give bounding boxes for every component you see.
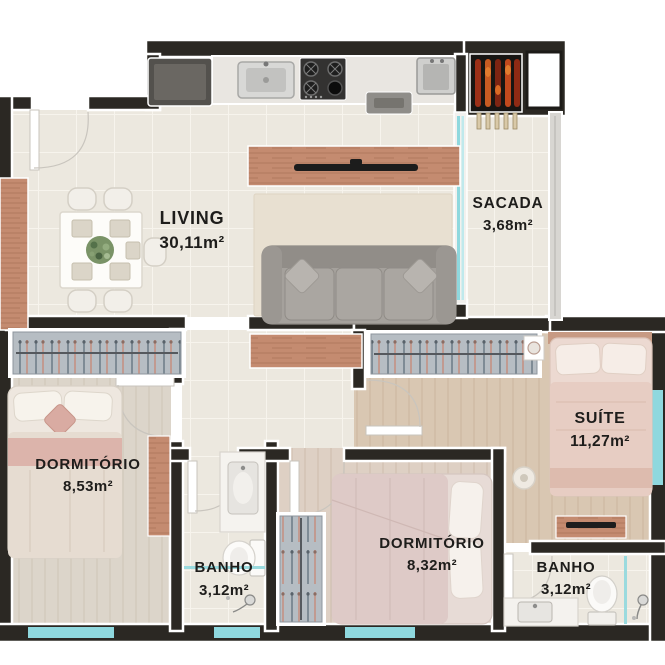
label-banho2-area: 3,12m² (541, 581, 591, 598)
dorm1-dresser (148, 436, 170, 536)
vanity-icon (220, 452, 265, 532)
label-sacada-area: 3,68m² (483, 217, 533, 234)
wall-banho2-north (530, 541, 665, 554)
window-banho1 (214, 627, 260, 638)
shower-glass (624, 556, 627, 624)
wardrobe-dorm2 (276, 512, 326, 626)
range-hood-inner (374, 98, 404, 108)
stove-icon (300, 58, 346, 100)
centerpiece-plant-icon (86, 236, 114, 264)
pillow (601, 343, 647, 375)
throw (550, 468, 652, 488)
fridge-front (154, 64, 206, 100)
window-dorm1 (28, 627, 114, 638)
floor-plan: LIVING 30,11m² SACADA 3,68m² DORMITÓRIO … (0, 0, 665, 665)
wardrobe-dorm1 (8, 328, 186, 378)
suite-tv-panel (556, 516, 626, 538)
label-banho2: BANHO (537, 559, 596, 576)
label-living: LIVING (160, 208, 225, 228)
tv-icon (294, 164, 418, 171)
floor-plan-canvas: LIVING 30,11m² SACADA 3,68m² DORMITÓRIO … (0, 0, 665, 665)
label-dormitorio2-area: 8,32m² (407, 557, 457, 574)
pillow (555, 343, 601, 375)
sink-icon (238, 62, 294, 99)
wall-step-right (546, 316, 665, 332)
label-banho1-area: 3,12m² (199, 582, 249, 599)
window-dorm2 (345, 627, 415, 638)
wall-divider-left (6, 316, 186, 330)
wall-corr-south-a (170, 448, 190, 461)
wall-sacada-divider (455, 54, 467, 116)
label-dormitorio1: DORMITÓRIO (35, 455, 141, 473)
label-suite: SUÍTE (574, 408, 625, 427)
window-suite (652, 390, 663, 485)
duct-shaft (527, 52, 561, 108)
grill-icon (470, 54, 522, 129)
toilet-icon (587, 576, 617, 625)
lamp-icon (528, 342, 540, 354)
sink2-icon (417, 58, 455, 94)
tv-stand (350, 159, 362, 165)
label-dormitorio2: DORMITÓRIO (379, 534, 485, 552)
label-banho1: BANHO (195, 559, 254, 576)
label-sacada: SACADA (472, 195, 543, 212)
label-living-area: 30,11m² (159, 233, 224, 252)
suite-nightstand (524, 336, 544, 360)
hall-console (250, 334, 362, 368)
label-suite-area: 11,27m² (570, 433, 630, 450)
wall-dorm1-east-bottom (170, 441, 183, 631)
sofa (262, 246, 456, 324)
wall-corr-south-c (344, 448, 505, 461)
tv-icon (566, 522, 616, 528)
pillow (448, 481, 484, 539)
vanity-icon (504, 598, 578, 626)
sideboard (0, 178, 28, 330)
label-dormitorio1-area: 8,53m² (63, 478, 113, 495)
wardrobe-suite (366, 330, 542, 378)
suite-floor-lamp-icon (513, 467, 535, 489)
wall-dorm2-east (492, 448, 505, 631)
